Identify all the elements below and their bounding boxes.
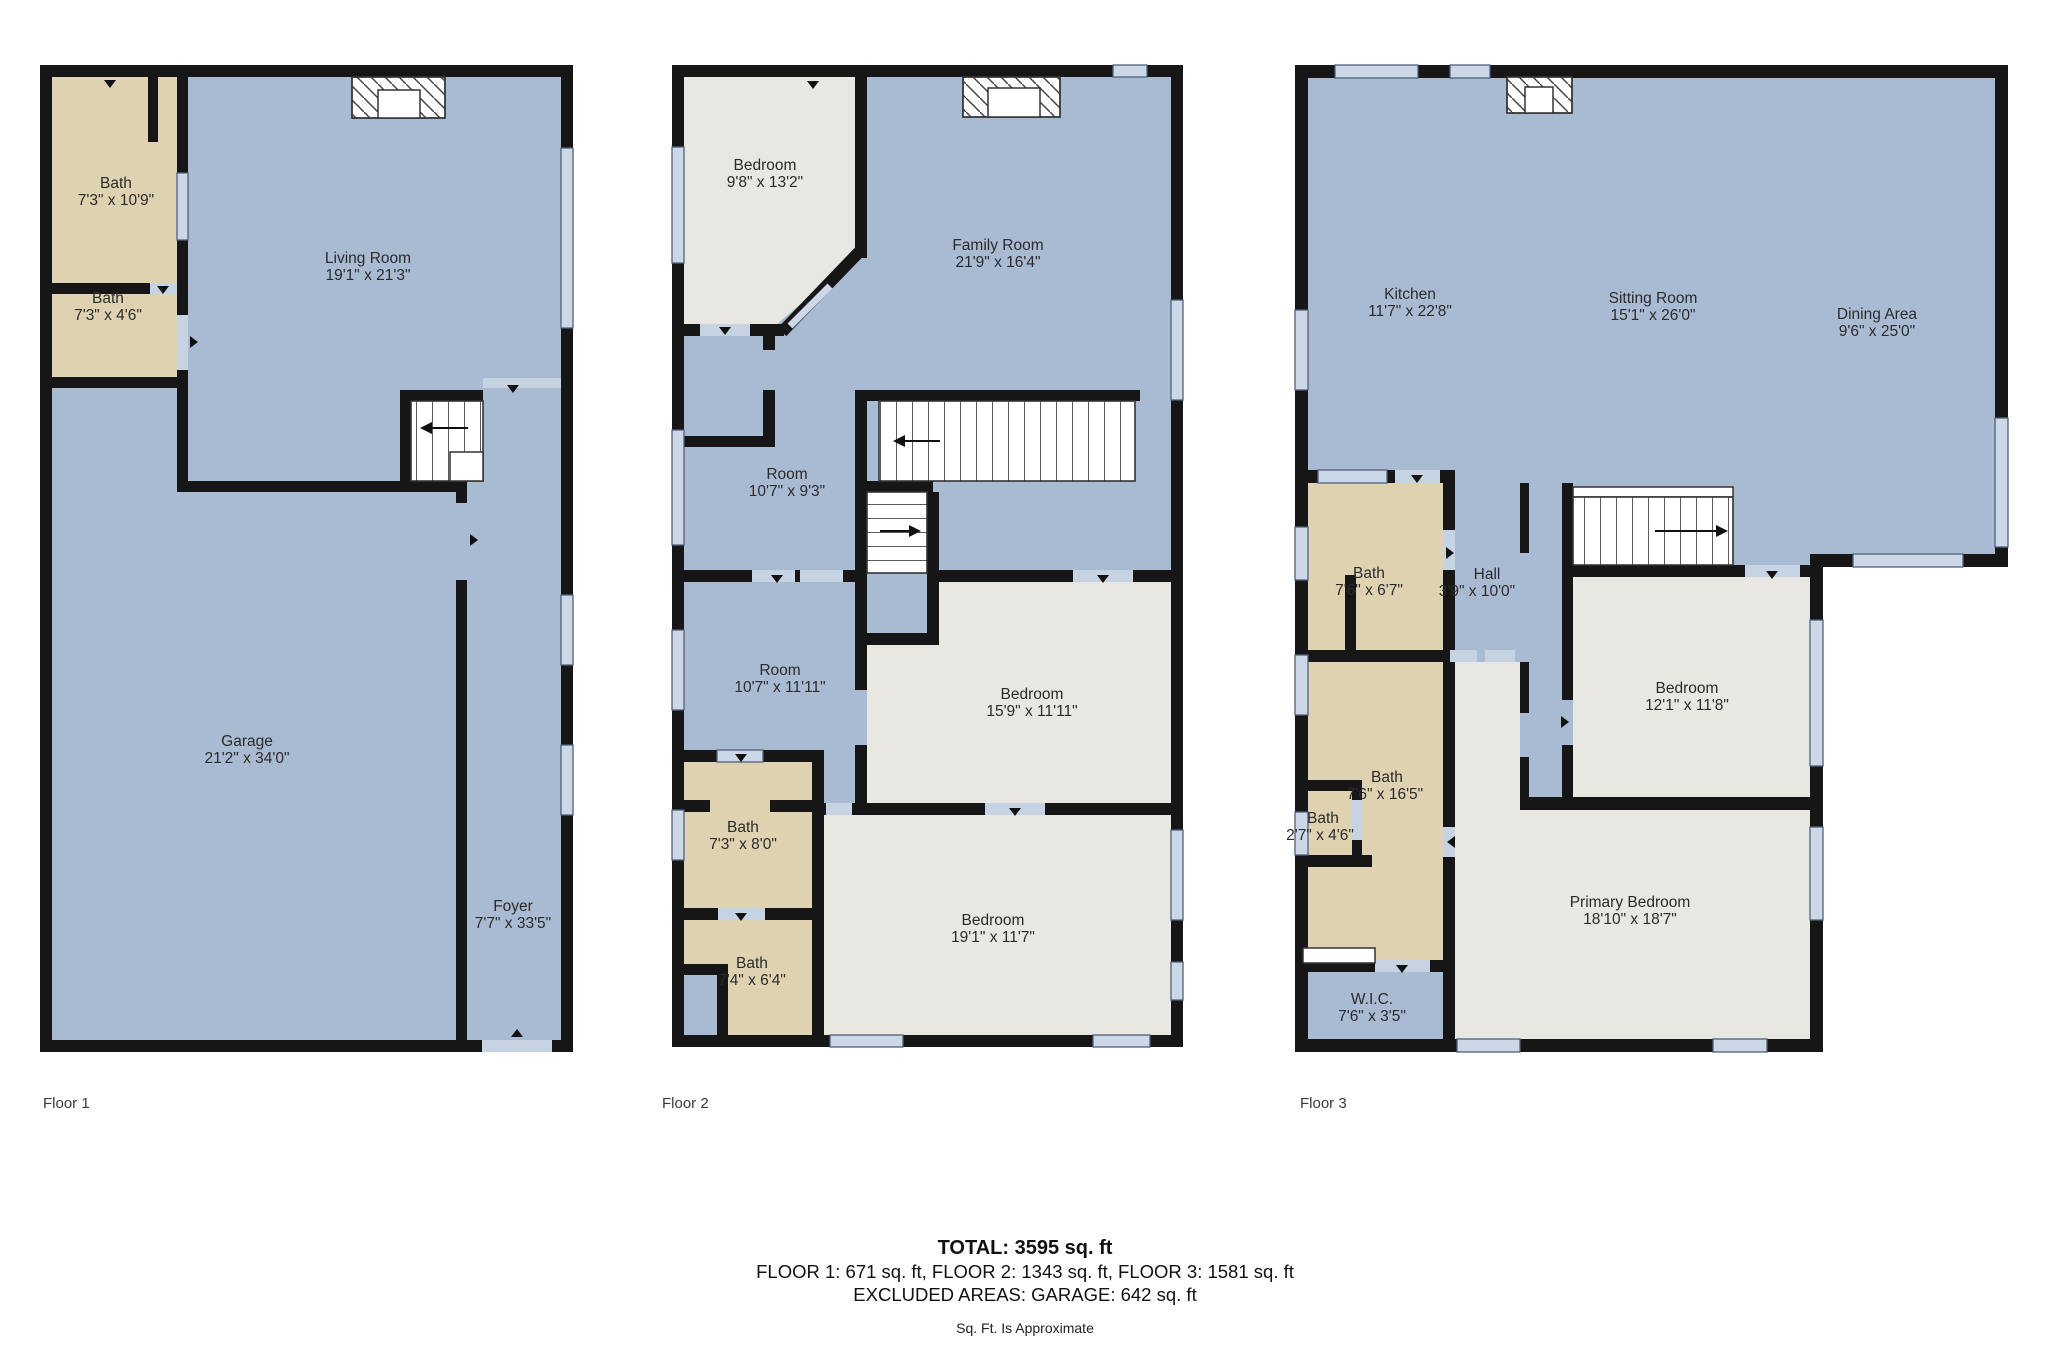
staircase [411,401,483,481]
room-dims: 7'3" x 10'9" [78,192,154,209]
room-name: Bath [1353,565,1385,582]
floor-1-plan: Bath 7'3" x 10'9" Bath 7'3" x 4'6" Livin… [40,65,573,1112]
room-dims: 10'7" x 11'11" [734,679,825,696]
room-label-primary-bedroom: Primary Bedroom 18'10" x 18'7" [1570,894,1691,928]
room-dims: 12'1" x 11'8" [1645,697,1729,714]
room-label-sitting-room: Sitting Room 15'1" x 26'0" [1609,290,1698,324]
room-name: Bedroom [962,912,1025,929]
floorplan-canvas: Bath 7'3" x 10'9" Bath 7'3" x 4'6" Livin… [0,0,2048,1365]
room-name: Bath [100,175,132,192]
room-dims: 7'3" x 4'6" [74,307,142,324]
floor-1-tag: Floor 1 [43,1095,90,1112]
room-label-bedroom-4: Bedroom 12'1" x 11'8" [1645,680,1729,714]
floor-sqft-line: FLOOR 1: 671 sq. ft, FLOOR 2: 1343 sq. f… [425,1260,1625,1283]
floor-1-room-fills [52,77,561,1040]
room-dims: 15'1" x 26'0" [1610,307,1695,324]
staircase-lower [867,492,927,573]
room-name: Hall [1474,566,1501,583]
room-name: Bath [1371,769,1403,786]
room-name: W.I.C. [1351,991,1393,1008]
staircase [1573,487,1733,565]
room-label-bedroom-3: Bedroom 19'1" x 11'7" [951,912,1035,946]
total-sqft: TOTAL: 3595 sq. ft [425,1236,1625,1260]
room-name: Primary Bedroom [1570,894,1691,911]
room-label-dining-area: Dining Area 9'6" x 25'0" [1837,306,1918,340]
room-dims: 7'4" x 6'4" [718,972,786,989]
room-dims: 9'6" x 25'0" [1839,323,1915,340]
room-name: Garage [221,733,273,750]
room-name: Bath [1307,810,1339,827]
room-dims: 11'7" x 22'8" [1368,303,1452,320]
room-dims: 7'6" x 6'7" [1335,582,1403,599]
room-dims: 9'8" x 13'2" [727,174,803,191]
floor-2-tag: Floor 2 [662,1095,709,1112]
fireplace-icon [963,77,1060,117]
room-name: Bath [736,955,768,972]
room-dims: 7'7" x 33'5" [475,915,551,932]
room-name: Foyer [493,898,533,915]
room-dims: 7'6" x 16'5" [1347,786,1423,803]
floor-2-plan: Bedroom 9'8" x 13'2" Family Room 21'9" x… [662,65,1183,1112]
floor-3-plan: Kitchen 11'7" x 22'8" Sitting Room 15'1"… [1286,65,2008,1112]
bathtub [1303,948,1375,963]
floorplan-page: Bath 7'3" x 10'9" Bath 7'3" x 4'6" Livin… [0,0,2048,1365]
room-dims: 19'1" x 11'7" [951,929,1035,946]
staircase-upper [879,401,1135,481]
square-footage-summary: TOTAL: 3595 sq. ft FLOOR 1: 671 sq. ft, … [425,1236,1625,1336]
room-name: Room [766,466,807,483]
room-name: Bedroom [1656,680,1719,697]
room-name: Kitchen [1384,286,1436,303]
room-name: Bath [727,819,759,836]
room-name: Dining Area [1837,306,1918,323]
floor-3-tag: Floor 3 [1300,1095,1347,1112]
room-dims: 7'6" x 3'5" [1338,1008,1406,1025]
room-label-living-room: Living Room 19'1" x 21'3" [325,250,411,284]
room-label-family-room: Family Room 21'9" x 16'4" [952,237,1043,271]
room-name: Bedroom [734,157,797,174]
room-name: Sitting Room [1609,290,1698,307]
disclaimer: Sq. Ft. Is Approximate [425,1320,1625,1336]
room-dims: 3'9" x 10'0" [1439,583,1515,600]
room-name: Bath [92,290,124,307]
room-dims: 21'9" x 16'4" [955,254,1040,271]
room-dims: 7'3" x 8'0" [709,836,777,853]
room-name: Room [759,662,800,679]
room-dims: 2'7" x 4'6" [1286,827,1354,844]
room-dims: 15'9" x 11'11" [986,703,1077,720]
room-dims: 10'7" x 9'3" [749,483,825,500]
fireplace-icon [1507,77,1572,113]
room-dims: 19'1" x 21'3" [325,267,410,284]
fireplace-icon [352,77,445,118]
room-label-bedroom-1: Bedroom 9'8" x 13'2" [727,157,803,191]
excluded-areas: EXCLUDED AREAS: GARAGE: 642 sq. ft [425,1283,1625,1306]
room-name: Family Room [952,237,1043,254]
room-dims: 18'10" x 18'7" [1583,911,1677,928]
room-dims: 21'2" x 34'0" [204,750,289,767]
room-name: Living Room [325,250,411,267]
room-name: Bedroom [1001,686,1064,703]
